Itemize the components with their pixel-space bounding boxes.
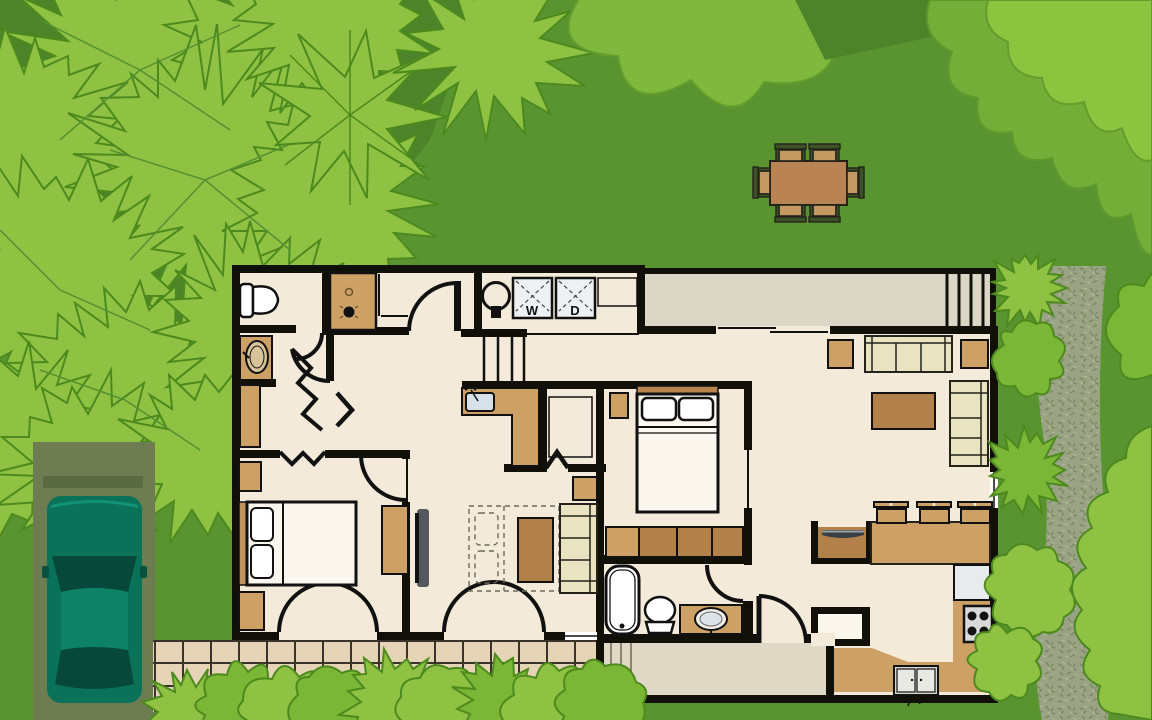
svg-text:D: D (570, 303, 579, 318)
svg-text:W: W (526, 303, 539, 318)
